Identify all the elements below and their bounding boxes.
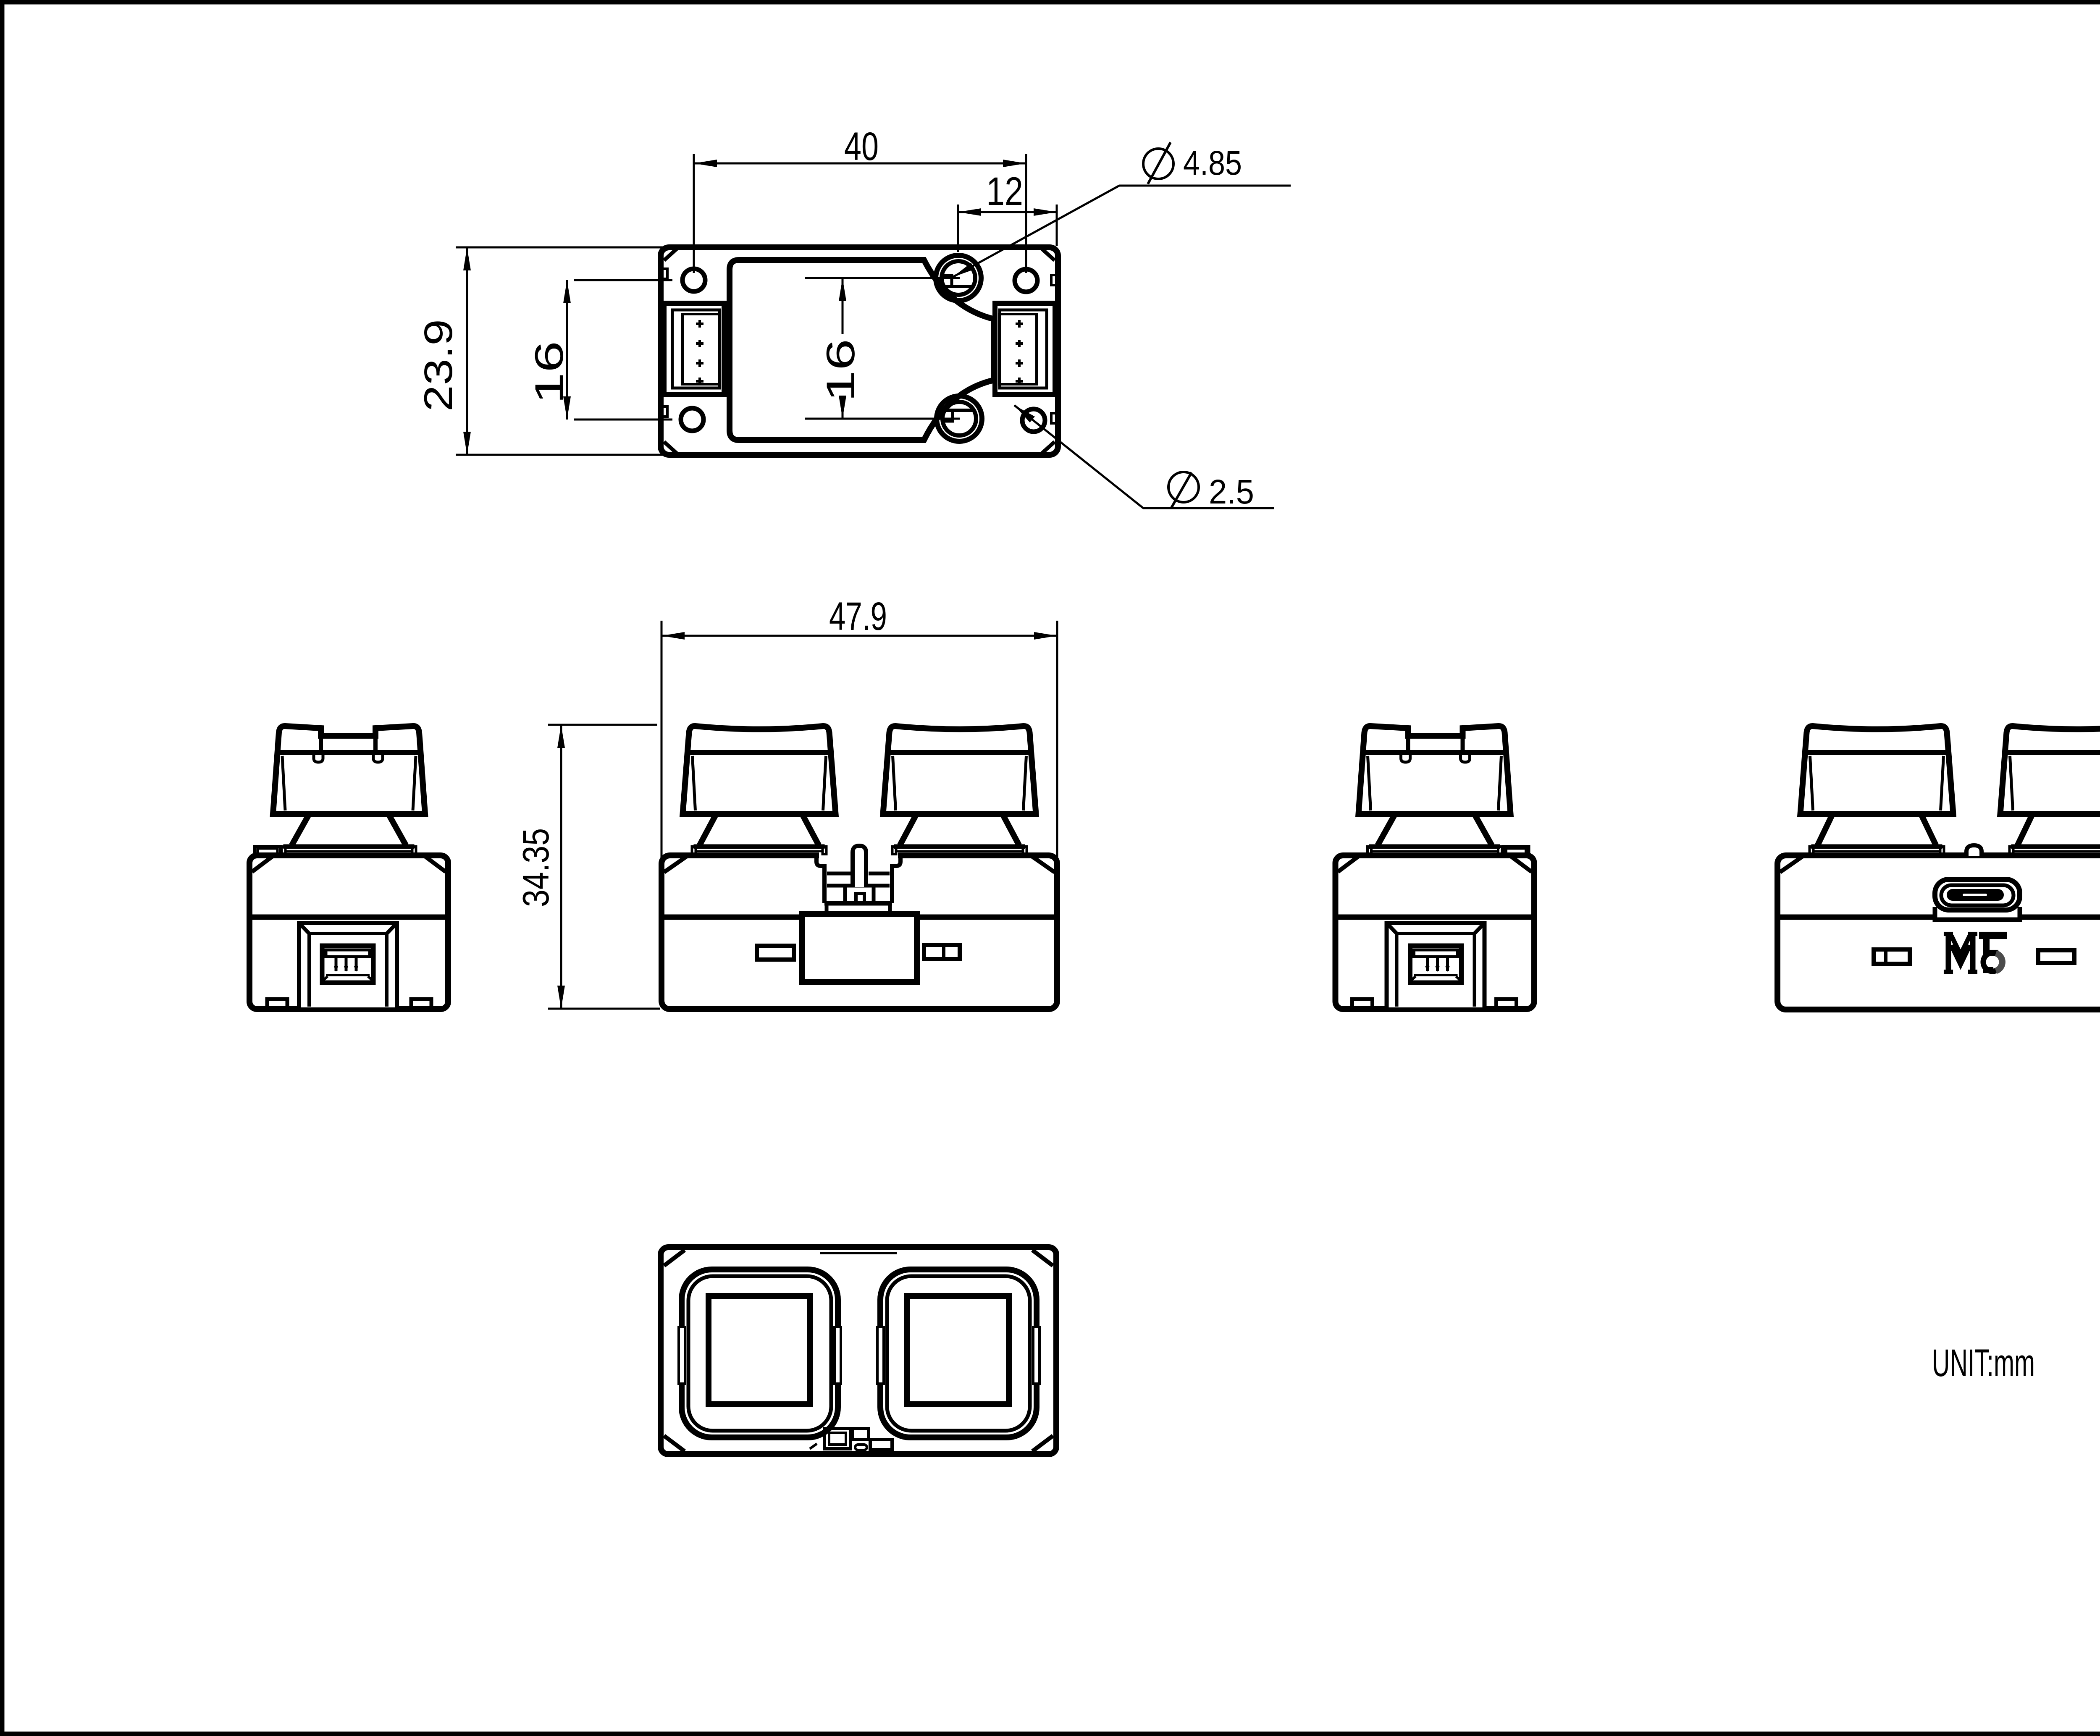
svg-text:23.9: 23.9 [416,319,461,412]
svg-text:40: 40 [844,124,879,169]
svg-text:2.5: 2.5 [1209,473,1254,511]
svg-text:47.9: 47.9 [829,594,887,639]
svg-text:34.35: 34.35 [515,828,556,907]
svg-text:4.85: 4.85 [1183,144,1242,182]
svg-text:16: 16 [819,339,863,402]
svg-text:16: 16 [527,341,572,404]
svg-text:12: 12 [986,169,1023,214]
svg-text:UNIT:mm: UNIT:mm [1932,1342,2035,1385]
